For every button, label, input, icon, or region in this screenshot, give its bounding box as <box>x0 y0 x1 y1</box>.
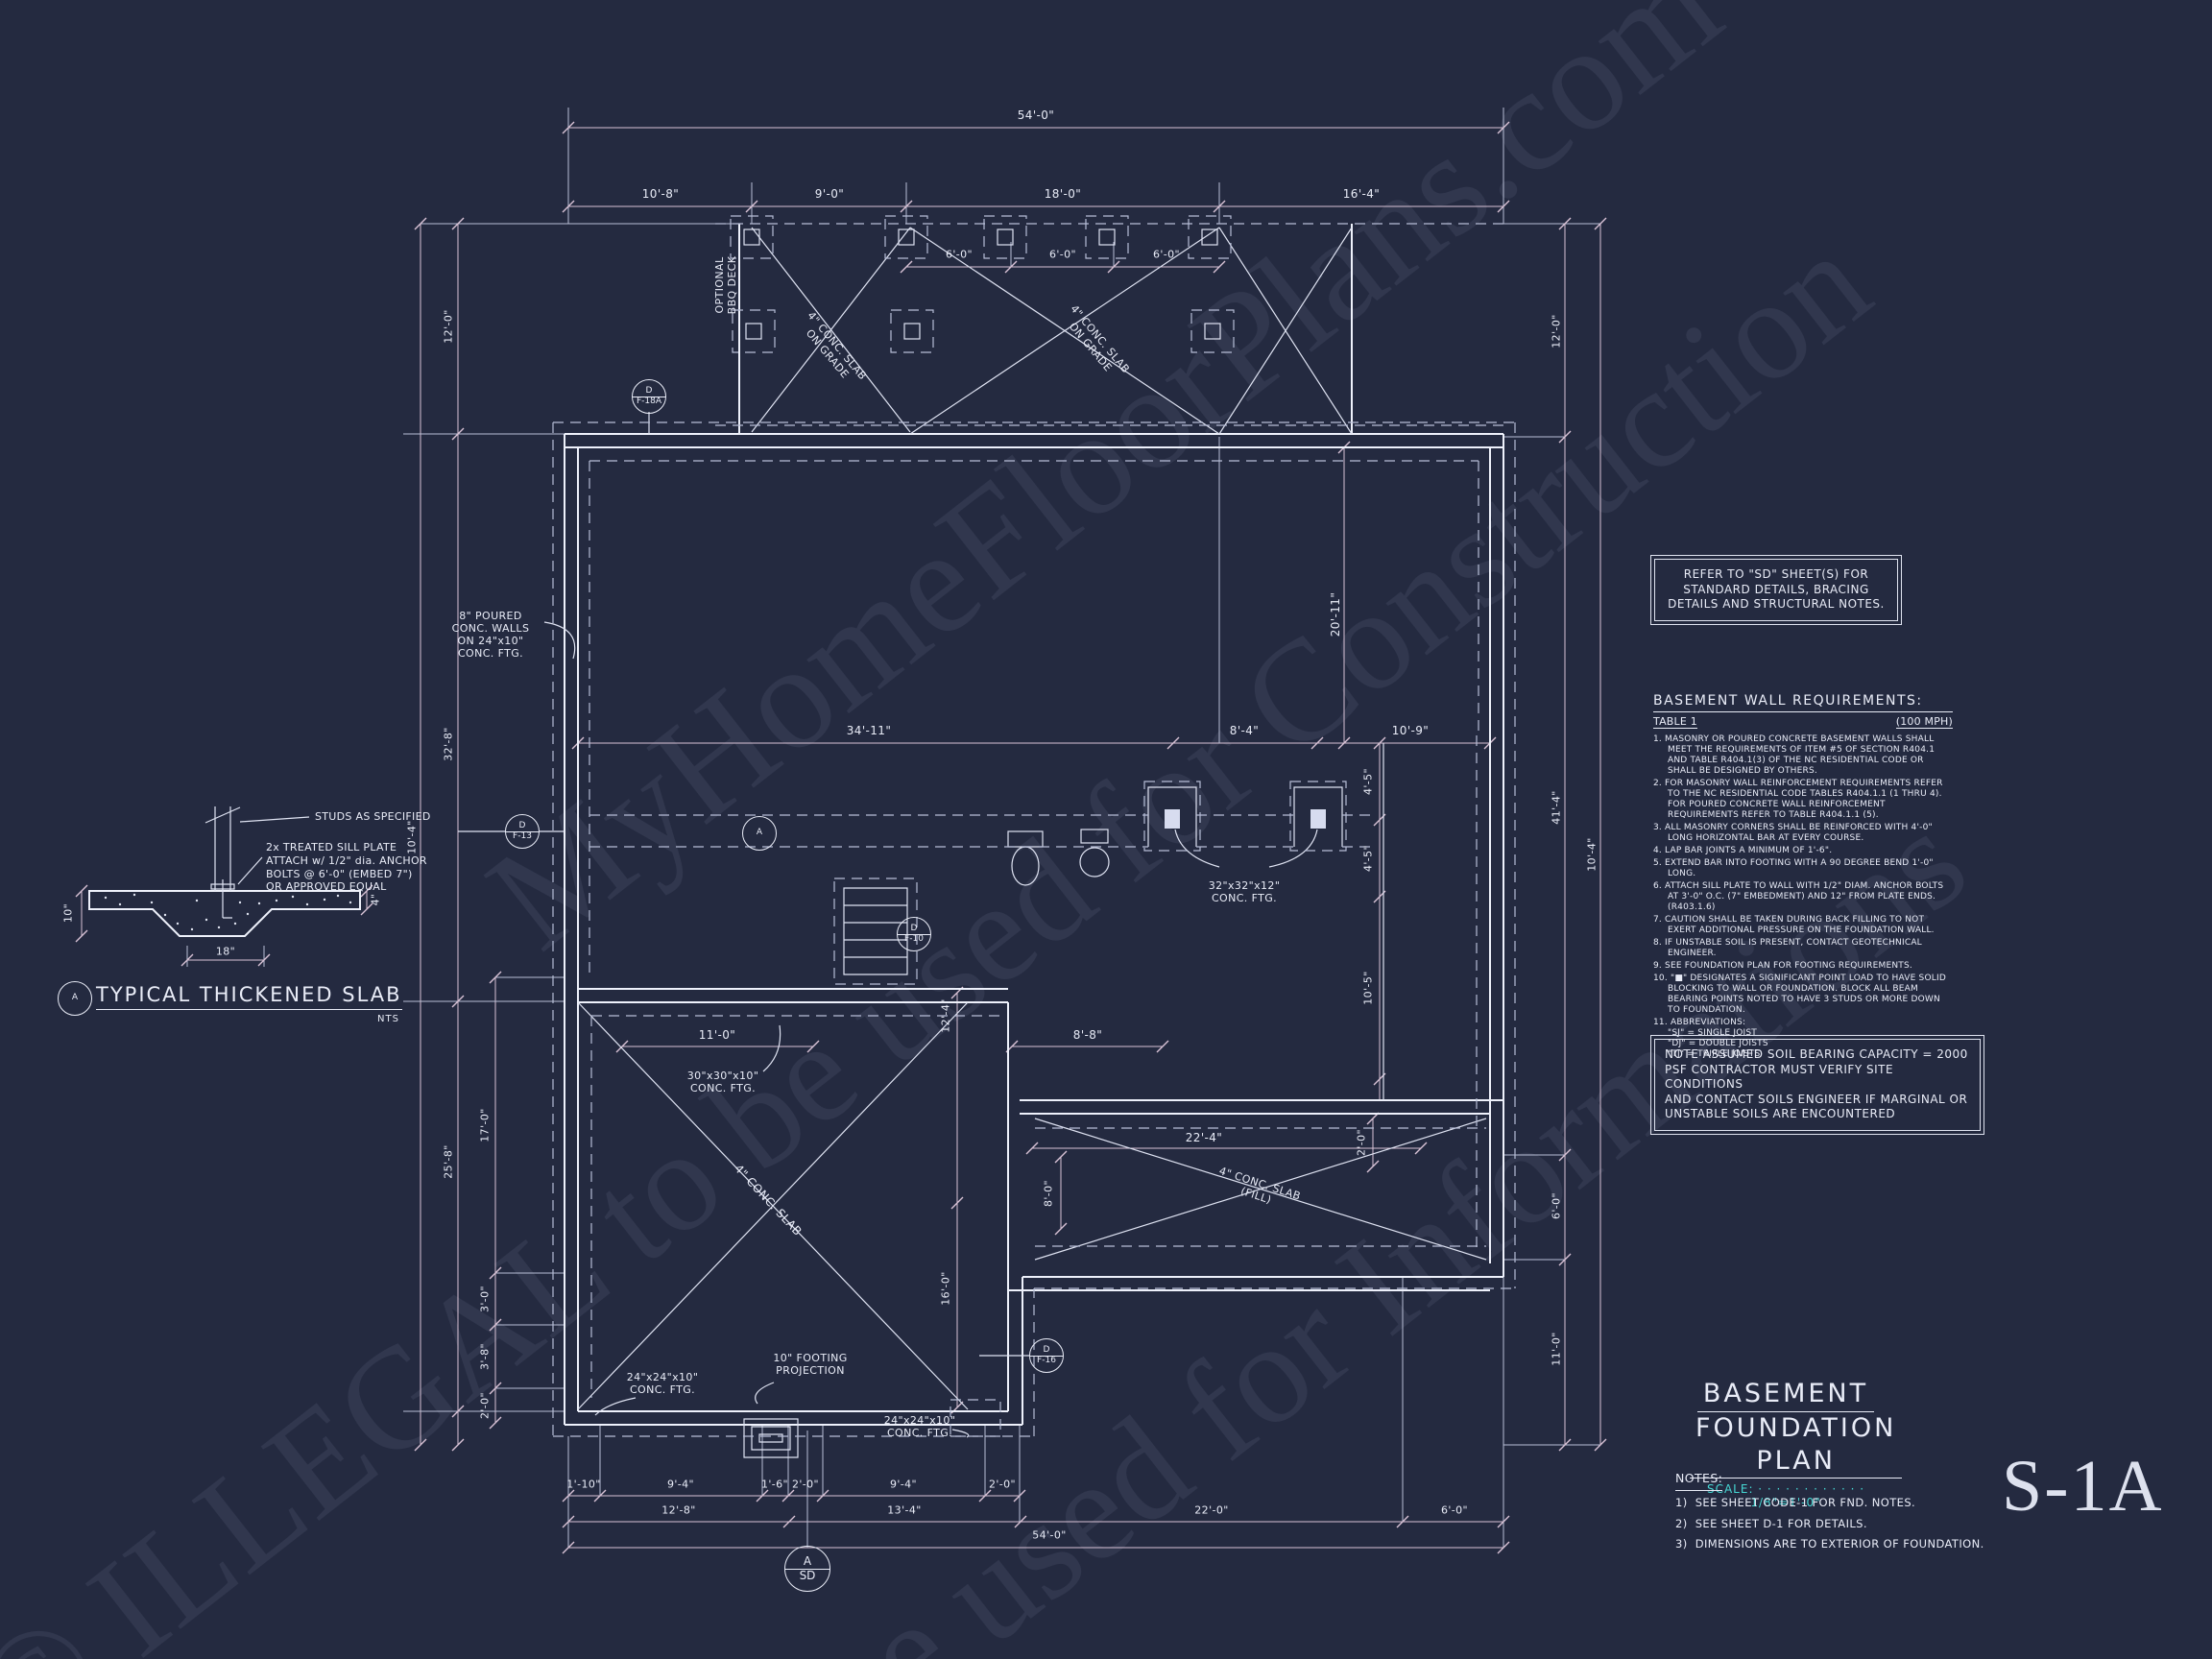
dim-bot-22-0: 22'-0" <box>1194 1505 1228 1518</box>
wall-req-item: 6. ATTACH SILL PLATE TO WALL WITH 1/2" D… <box>1653 881 1953 913</box>
detail-marker-f18a: D F-18A <box>632 379 666 414</box>
footing-projection-note: 10" FOOTING PROJECTION <box>773 1353 847 1378</box>
detail-marker-f10: D F-10 <box>897 917 931 951</box>
dim-bot-1-10: 1'-10" <box>566 1479 600 1492</box>
wall-req-table: TABLE 1 <box>1653 715 1697 729</box>
dim-bot-6-0: 6'-0" <box>1441 1505 1468 1518</box>
dim-22-4: 22'-4" <box>1186 1131 1222 1144</box>
wall-req-subheading: TABLE 1 (100 MPH) <box>1653 715 1953 729</box>
detail-marker-a: A <box>742 816 777 851</box>
dim-10-9: 10'-9" <box>1392 724 1429 737</box>
detail-marker-f13: D F-13 <box>505 814 540 849</box>
dim-bot-2-0b: 2'-0" <box>989 1479 1016 1492</box>
dim-left-3-0: 3'-0" <box>480 1286 493 1312</box>
dim-right-6-0: 6'-0" <box>1551 1192 1564 1219</box>
dim-bot-12-8: 12'-8" <box>661 1505 695 1518</box>
dim-20-11: 20'-11" <box>1329 592 1342 637</box>
plan-title-line1: BASEMENT <box>1697 1378 1874 1412</box>
dim-top-seg2: 9'-0" <box>815 187 844 201</box>
detail-scale-nts: NTS <box>377 1014 399 1024</box>
dim-10-5: 10'-5" <box>1363 971 1376 1004</box>
dim-left-12-0: 12'-0" <box>444 309 456 343</box>
blueprint-sheet: MyHomeFloorPlans.com © ILLEGAL to be use… <box>0 0 2212 1659</box>
wall-req-item: 4. LAP BAR JOINTS A MINIMUM OF 1'-6". <box>1653 846 1953 856</box>
dim-left-17-0: 17'-0" <box>480 1108 493 1142</box>
dim-16-0: 16'-0" <box>941 1271 953 1305</box>
detail-marker-f16: D F-16 <box>1029 1338 1064 1373</box>
footing-note-24-left: 24"x24"x10" CONC. FTG. <box>627 1372 699 1397</box>
wall-req-item: 10. "■" DESIGNATES A SIGNIFICANT POINT L… <box>1653 974 1953 1016</box>
dim-right-41-4: 41'-4" <box>1551 790 1564 824</box>
wall-req-wind: (100 MPH) <box>1896 715 1953 729</box>
dim-bot-9-4a: 9'-4" <box>667 1479 694 1492</box>
sheet-number: S-1A <box>2002 1445 2163 1528</box>
detail-dim-10: 10" <box>63 903 76 923</box>
dim-top-seg1: 10'-8" <box>642 187 679 201</box>
dim-11-0: 11'-0" <box>699 1028 735 1042</box>
dim-bot-54-0: 54'-0" <box>1032 1530 1066 1543</box>
dim-8-4: 8'-4" <box>1230 724 1259 737</box>
wall-req-item: 7. CAUTION SHALL BE TAKEN DURING BACK FI… <box>1653 915 1953 936</box>
wall-req-item: 3. ALL MASONRY CORNERS SHALL BE REINFORC… <box>1653 823 1953 844</box>
dim-left-25-8: 25'-8" <box>444 1144 456 1178</box>
deck-dim-1: 6'-0" <box>946 250 973 262</box>
sd-reference-note: REFER TO "SD" SHEET(S) FOR STANDARD DETA… <box>1654 559 1898 621</box>
dim-4-5-b: 4'-5" <box>1363 845 1376 872</box>
detail-dim-4: 4" <box>371 894 383 906</box>
footing-note-30: 30"x30"x10" CONC. FTG. <box>687 1070 759 1095</box>
sheet-notes-heading: NOTES: <box>1675 1467 1722 1491</box>
dim-top-seg4: 16'-4" <box>1343 187 1380 201</box>
dim-bot-13-4: 13'-4" <box>887 1505 921 1518</box>
dim-left-32-8: 32'-8" <box>444 727 456 760</box>
dim-top-seg3: 18'-0" <box>1045 187 1081 201</box>
deck-dim-3: 6'-0" <box>1153 250 1180 262</box>
wall-req-heading: BASEMENT WALL REQUIREMENTS: <box>1653 693 1953 712</box>
sheet-note-1: 1) SEE SHEET CODE-1 FOR FND. NOTES. <box>1675 1493 1984 1514</box>
detail-marker-sd: A SD <box>784 1546 830 1592</box>
dim-left-2-0: 2'-0" <box>480 1392 493 1419</box>
detail-sill-note: 2x TREATED SILL PLATE ATTACH w/ 1/2" dia… <box>266 841 427 894</box>
dim-right-11-0: 11'-0" <box>1551 1332 1564 1365</box>
wall-req-item: 9. SEE FOUNDATION PLAN FOR FOOTING REQUI… <box>1653 961 1953 972</box>
wall-note-8in: 8" POURED CONC. WALLS ON 24"x10" CONC. F… <box>452 611 530 661</box>
dim-2-0-v: 2'-0" <box>1357 1129 1369 1156</box>
dim-left-3-8: 3'-8" <box>480 1343 493 1370</box>
footing-note-24-right: 24"x24"x10" CONC. FTG. <box>884 1415 956 1440</box>
deck-label: OPTIONAL BBQ DECK <box>714 256 739 315</box>
wall-req-item: 1. MASONRY OR POURED CONCRETE BASEMENT W… <box>1653 734 1953 777</box>
dim-bot-9-4b: 9'-4" <box>890 1479 917 1492</box>
wall-req-item: 8. IF UNSTABLE SOIL IS PRESENT, CONTACT … <box>1653 938 1953 959</box>
sheet-notes: NOTES: 1) SEE SHEET CODE-1 FOR FND. NOTE… <box>1675 1467 1984 1555</box>
dim-34-11: 34'-11" <box>847 724 892 737</box>
dim-top-total: 54'-0" <box>1018 108 1054 122</box>
dim-12-4: 12'-4" <box>941 998 953 1032</box>
footing-note-32: 32"x32"x12" CONC. FTG. <box>1209 880 1281 905</box>
dim-8-0-v: 8'-0" <box>1044 1180 1056 1207</box>
wall-req-item: 5. EXTEND BAR INTO FOOTING WITH A 90 DEG… <box>1653 858 1953 879</box>
wall-req-item: 2. FOR MASONRY WALL REINFORCEMENT REQUIR… <box>1653 779 1953 821</box>
dim-4-5-a: 4'-5" <box>1363 768 1376 795</box>
deck-dim-2: 6'-0" <box>1049 250 1076 262</box>
soil-bearing-note: NOTE ASSUMED SOIL BEARING CAPACITY = 200… <box>1654 1039 1981 1131</box>
detail-studs-note: STUDS AS SPECIFIED <box>315 810 431 824</box>
detail-title-marker: A <box>58 981 92 1016</box>
dim-bot-1-6: 1'-6" <box>761 1479 788 1492</box>
dim-right-12-0: 12'-0" <box>1551 314 1564 348</box>
sheet-note-3: 3) DIMENSIONS ARE TO EXTERIOR OF FOUNDAT… <box>1675 1534 1984 1555</box>
dim-8-8: 8'-8" <box>1073 1028 1102 1042</box>
detail-dim-18: 18" <box>216 947 235 959</box>
sheet-note-2: 2) SEE SHEET D-1 FOR DETAILS. <box>1675 1514 1984 1535</box>
dim-bot-2-0a: 2'-0" <box>792 1479 819 1492</box>
detail-title: TYPICAL THICKENED SLAB <box>96 983 402 1010</box>
dim-right-10-4: 10'-4" <box>1587 837 1599 871</box>
basement-wall-requirements: BASEMENT WALL REQUIREMENTS: TABLE 1 (100… <box>1653 693 1953 1062</box>
